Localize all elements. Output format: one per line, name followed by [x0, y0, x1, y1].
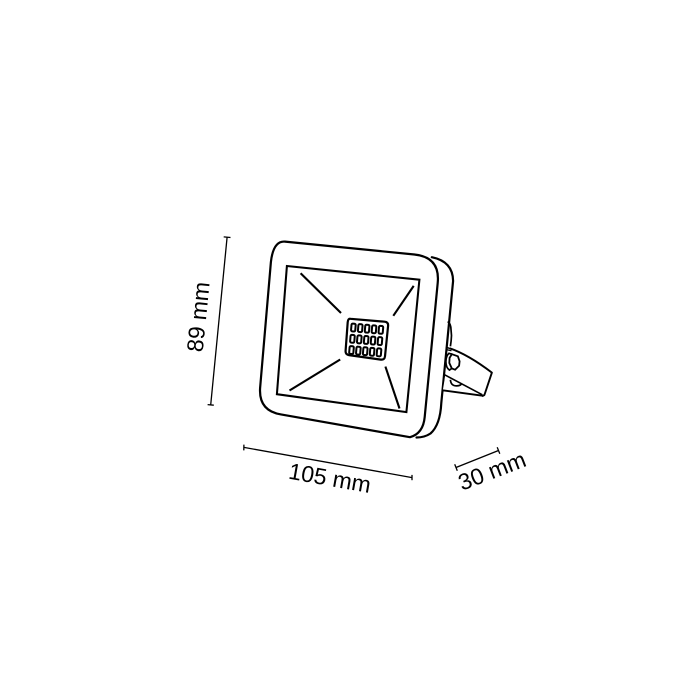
- svg-text:89 mm: 89 mm: [182, 281, 215, 354]
- svg-text:105 mm: 105 mm: [287, 458, 373, 498]
